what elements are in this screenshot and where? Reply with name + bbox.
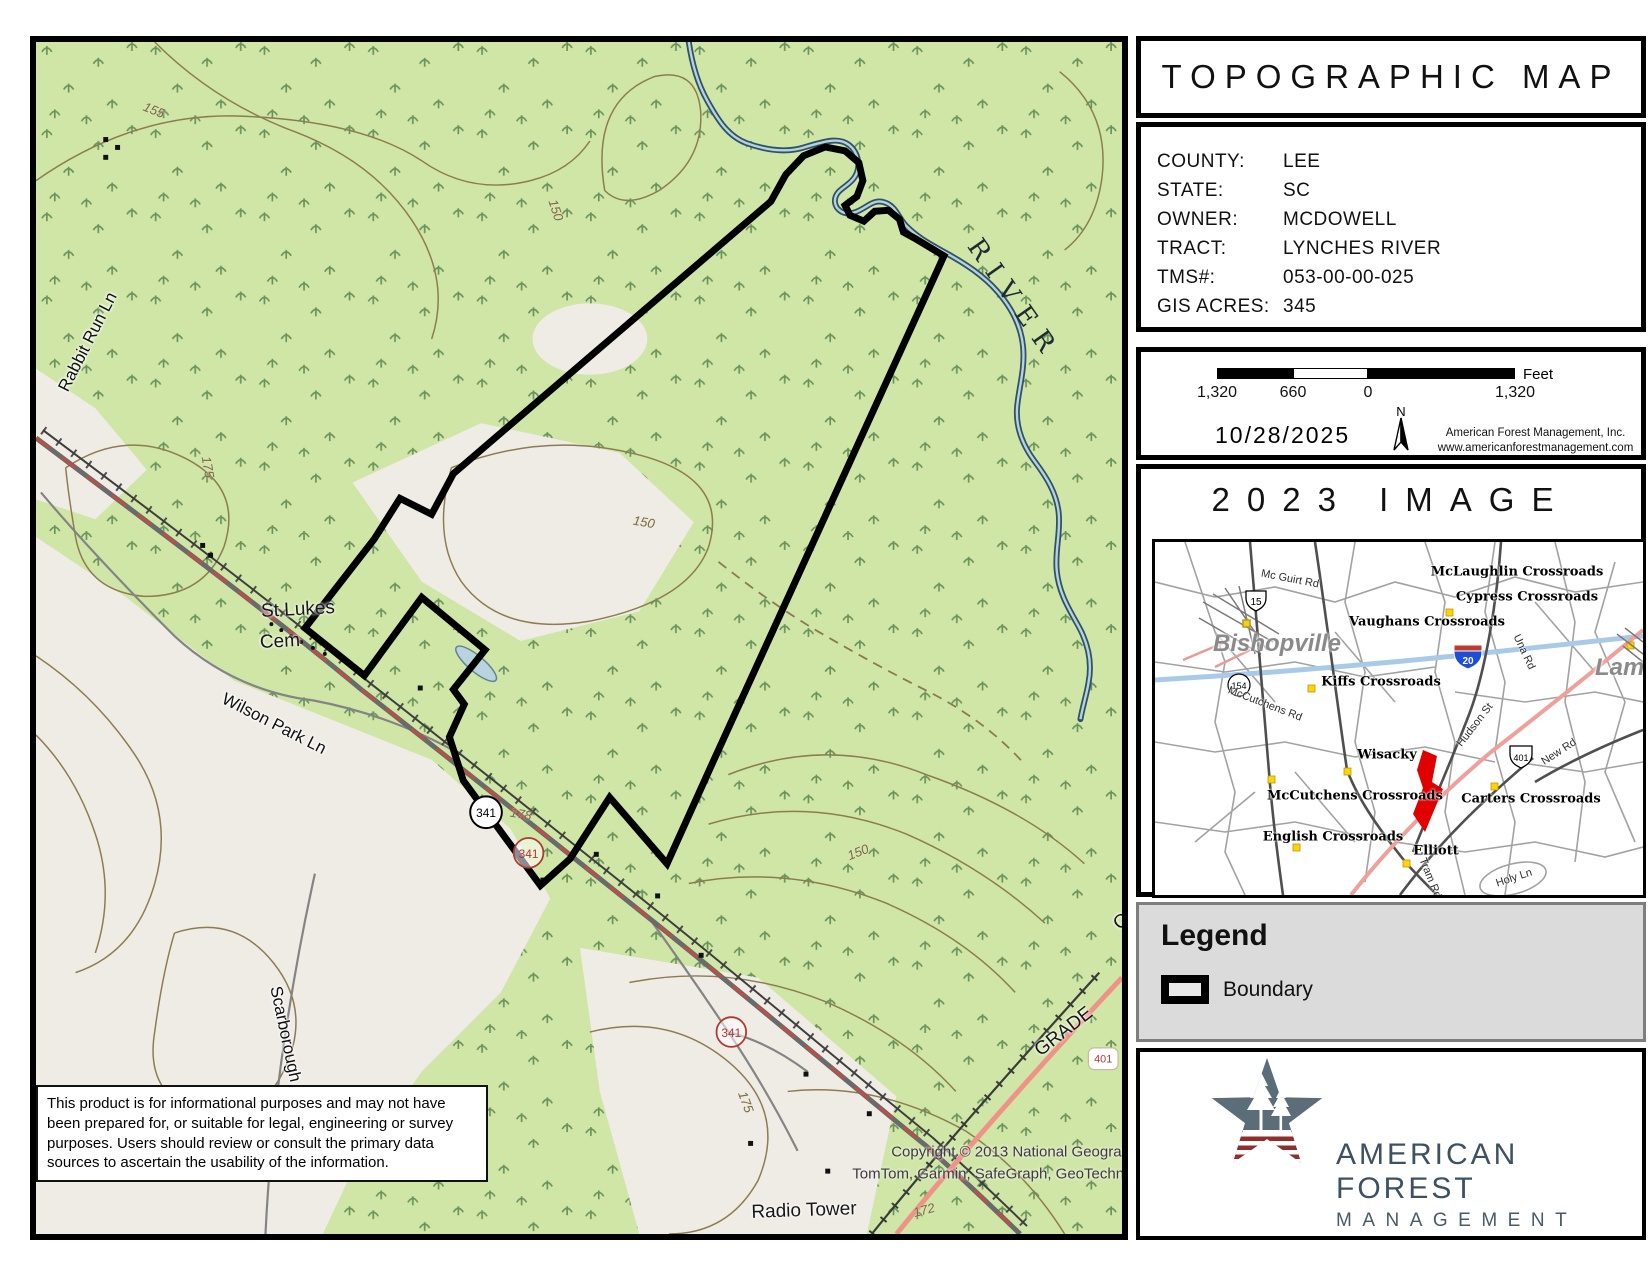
topo-map-canvas: 341 341 341 401 [36, 42, 1122, 1234]
info-label: COUNTY: [1157, 147, 1283, 176]
scale-unit: Feet [1523, 366, 1553, 383]
company-logo-box: AMERICAN FOREST MANAGEMENT [1136, 1048, 1646, 1240]
company-logo-text: AMERICAN FOREST MANAGEMENT [1336, 1138, 1642, 1232]
page-title: TOPOGRAPHIC MAP [1162, 58, 1621, 96]
company-name: American Forest Management, Inc. [1433, 426, 1638, 441]
info-label: OWNER: [1157, 205, 1283, 234]
location-inset-map: 15 154 20 401 McLaughlin CrossroadsCypre… [1152, 539, 1646, 898]
info-label: STATE: [1157, 176, 1283, 205]
info-row-0: COUNTY:LEE [1157, 147, 1641, 176]
legend-item-boundary: Boundary [1161, 975, 1313, 1004]
scale-box: Feet 1,320 660 0 1,320 10/28/2025 N Amer… [1136, 347, 1646, 460]
scale-tick-0: 1,320 [1197, 384, 1237, 402]
info-label: TRACT: [1157, 234, 1283, 263]
us-401-shield: 401 [1513, 753, 1528, 763]
company-url: www.americanforestmanagement.com [1433, 441, 1638, 456]
svg-text:20: 20 [1462, 656, 1474, 667]
topo-map: 341 341 341 401 155150175150178150175172… [30, 36, 1128, 1240]
disclaimer-box: This product is for informational purpos… [36, 1085, 488, 1182]
title-box: TOPOGRAPHIC MAP [1136, 36, 1646, 118]
info-value: MCDOWELL [1283, 205, 1397, 234]
info-label: TMS#: [1157, 263, 1283, 292]
info-row-2: OWNER:MCDOWELL [1157, 205, 1641, 234]
sidebar: TOPOGRAPHIC MAP COUNTY:LEESTATE:SCOWNER:… [1136, 36, 1646, 1240]
shield-341-red-1: 341 [519, 847, 539, 861]
info-box: COUNTY:LEESTATE:SCOWNER:MCDOWELLTRACT:LY… [1136, 122, 1646, 332]
north-label: N [1396, 404, 1405, 419]
us-15-shield: 15 [1250, 597, 1262, 608]
scale-tick-1: 660 [1280, 384, 1307, 402]
legend-item-label: Boundary [1223, 978, 1313, 1002]
logo-line-2: MANAGEMENT [1336, 1210, 1642, 1232]
map-date: 10/28/2025 [1215, 422, 1350, 449]
company-attribution: American Forest Management, Inc. www.ame… [1433, 426, 1638, 456]
info-row-3: TRACT:LYNCHES RIVER [1157, 234, 1641, 263]
shield-341-white: 341 [476, 806, 496, 820]
info-label: GIS ACRES: [1157, 292, 1283, 321]
boundary-swatch-icon [1161, 975, 1209, 1004]
info-row-1: STATE:SC [1157, 176, 1641, 205]
info-value: SC [1283, 176, 1310, 205]
shield-401: 401 [1094, 1054, 1112, 1066]
inset-map-canvas: 15 154 20 401 [1155, 542, 1643, 895]
topographic-map-product: 341 341 341 401 155150175150178150175172… [0, 0, 1650, 1275]
scale-bar [1217, 368, 1515, 379]
sc-154-shield: 154 [1231, 681, 1246, 691]
scale-tick-3: 1,320 [1495, 384, 1535, 402]
info-value: LYNCHES RIVER [1283, 234, 1441, 263]
shield-341-red-2: 341 [721, 1026, 741, 1040]
info-value: LEE [1283, 147, 1320, 176]
scale-tick-2: 0 [1364, 384, 1373, 402]
disclaimer-text: This product is for informational purpos… [47, 1095, 453, 1171]
legend-box: Legend Boundary [1136, 902, 1646, 1042]
image-box-title: 2023 IMAGE [1141, 481, 1641, 519]
tract-info-rows: COUNTY:LEESTATE:SCOWNER:MCDOWELLTRACT:LY… [1157, 147, 1641, 321]
north-arrow-icon: N [1381, 404, 1421, 456]
afm-star-logo-icon [1202, 1046, 1332, 1236]
legend-heading: Legend [1161, 919, 1643, 953]
info-row-4: TMS#:053-00-00-025 [1157, 263, 1641, 292]
info-value: 345 [1283, 292, 1316, 321]
aerial-image-box: 2023 IMAGE [1136, 464, 1646, 897]
logo-line-1: AMERICAN FOREST [1336, 1138, 1642, 1206]
info-row-5: GIS ACRES:345 [1157, 292, 1641, 321]
info-value: 053-00-00-025 [1283, 263, 1414, 292]
